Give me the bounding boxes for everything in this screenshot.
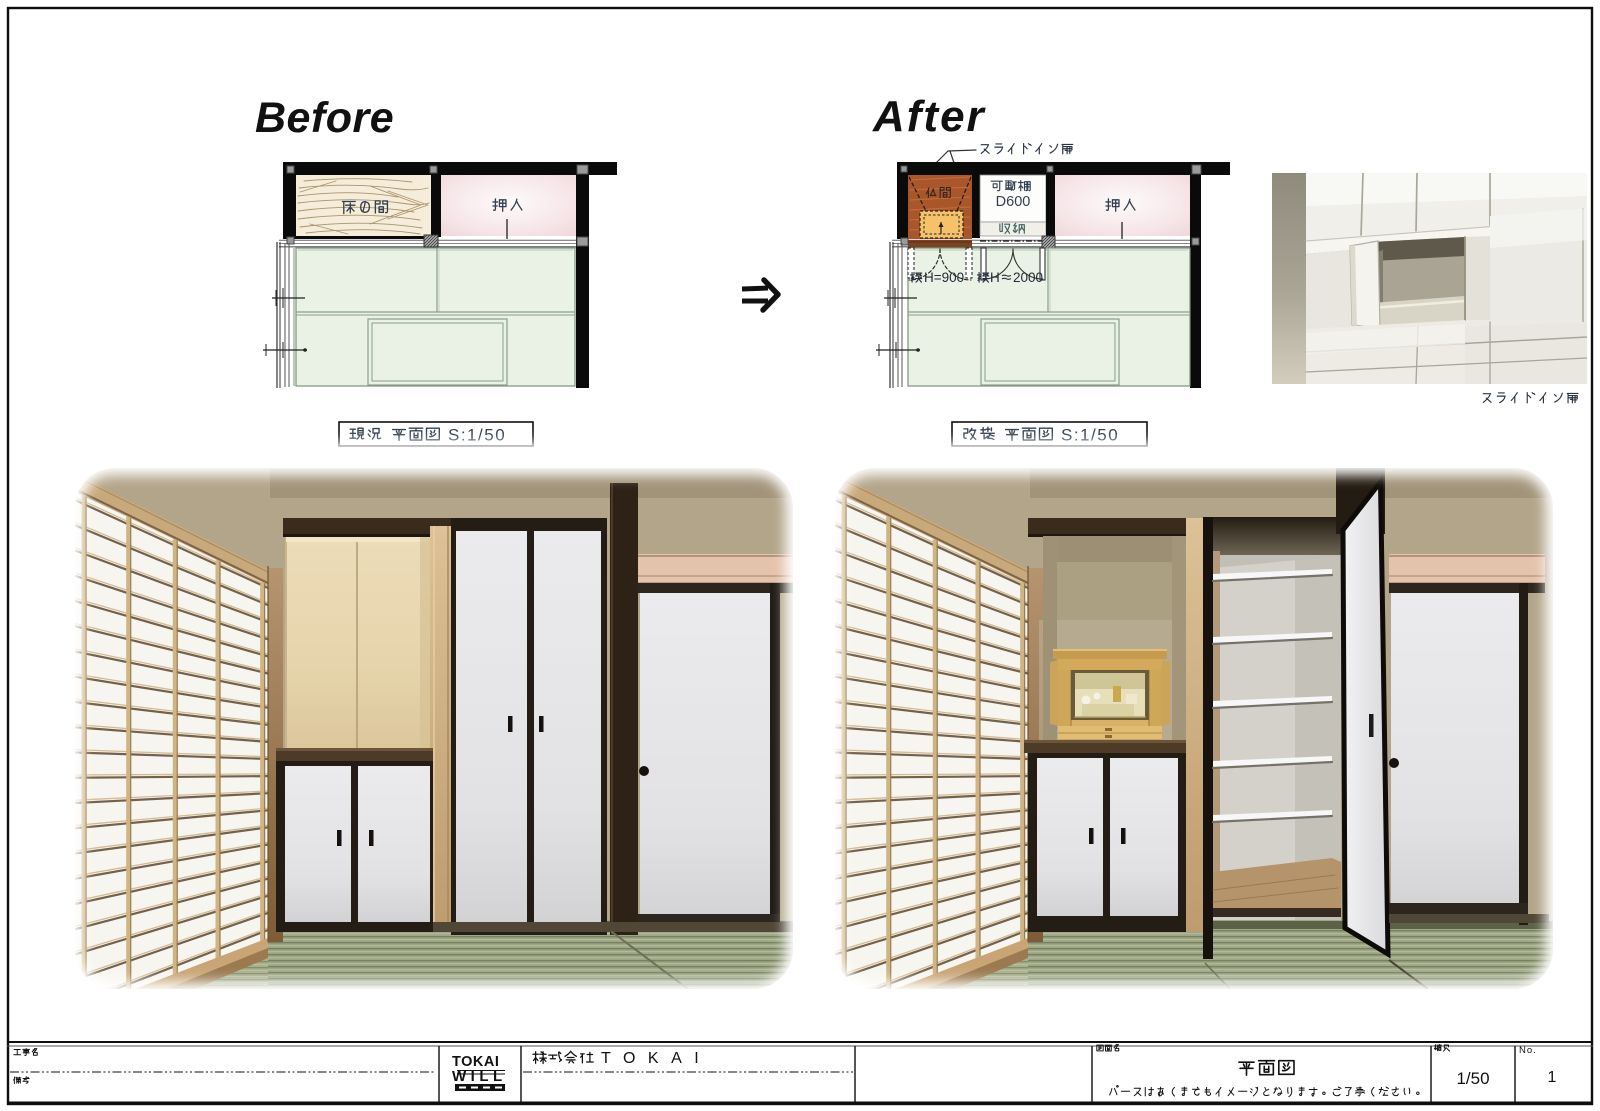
svg-text:TOKAI: TOKAI xyxy=(601,1050,711,1067)
svg-text:1: 1 xyxy=(1548,1069,1557,1086)
svg-text:After: After xyxy=(872,92,987,141)
svg-text:2000: 2000 xyxy=(1013,270,1043,285)
svg-text:H=900: H=900 xyxy=(924,270,964,285)
svg-text:No.: No. xyxy=(1519,1045,1537,1056)
svg-text:S:1/50: S:1/50 xyxy=(448,426,506,445)
svg-text:D600: D600 xyxy=(996,194,1031,210)
svg-text:1/50: 1/50 xyxy=(1456,1069,1489,1088)
svg-text:Before: Before xyxy=(255,94,394,142)
svg-text:S:1/50: S:1/50 xyxy=(1061,426,1119,445)
svg-text:H: H xyxy=(990,270,1000,285)
